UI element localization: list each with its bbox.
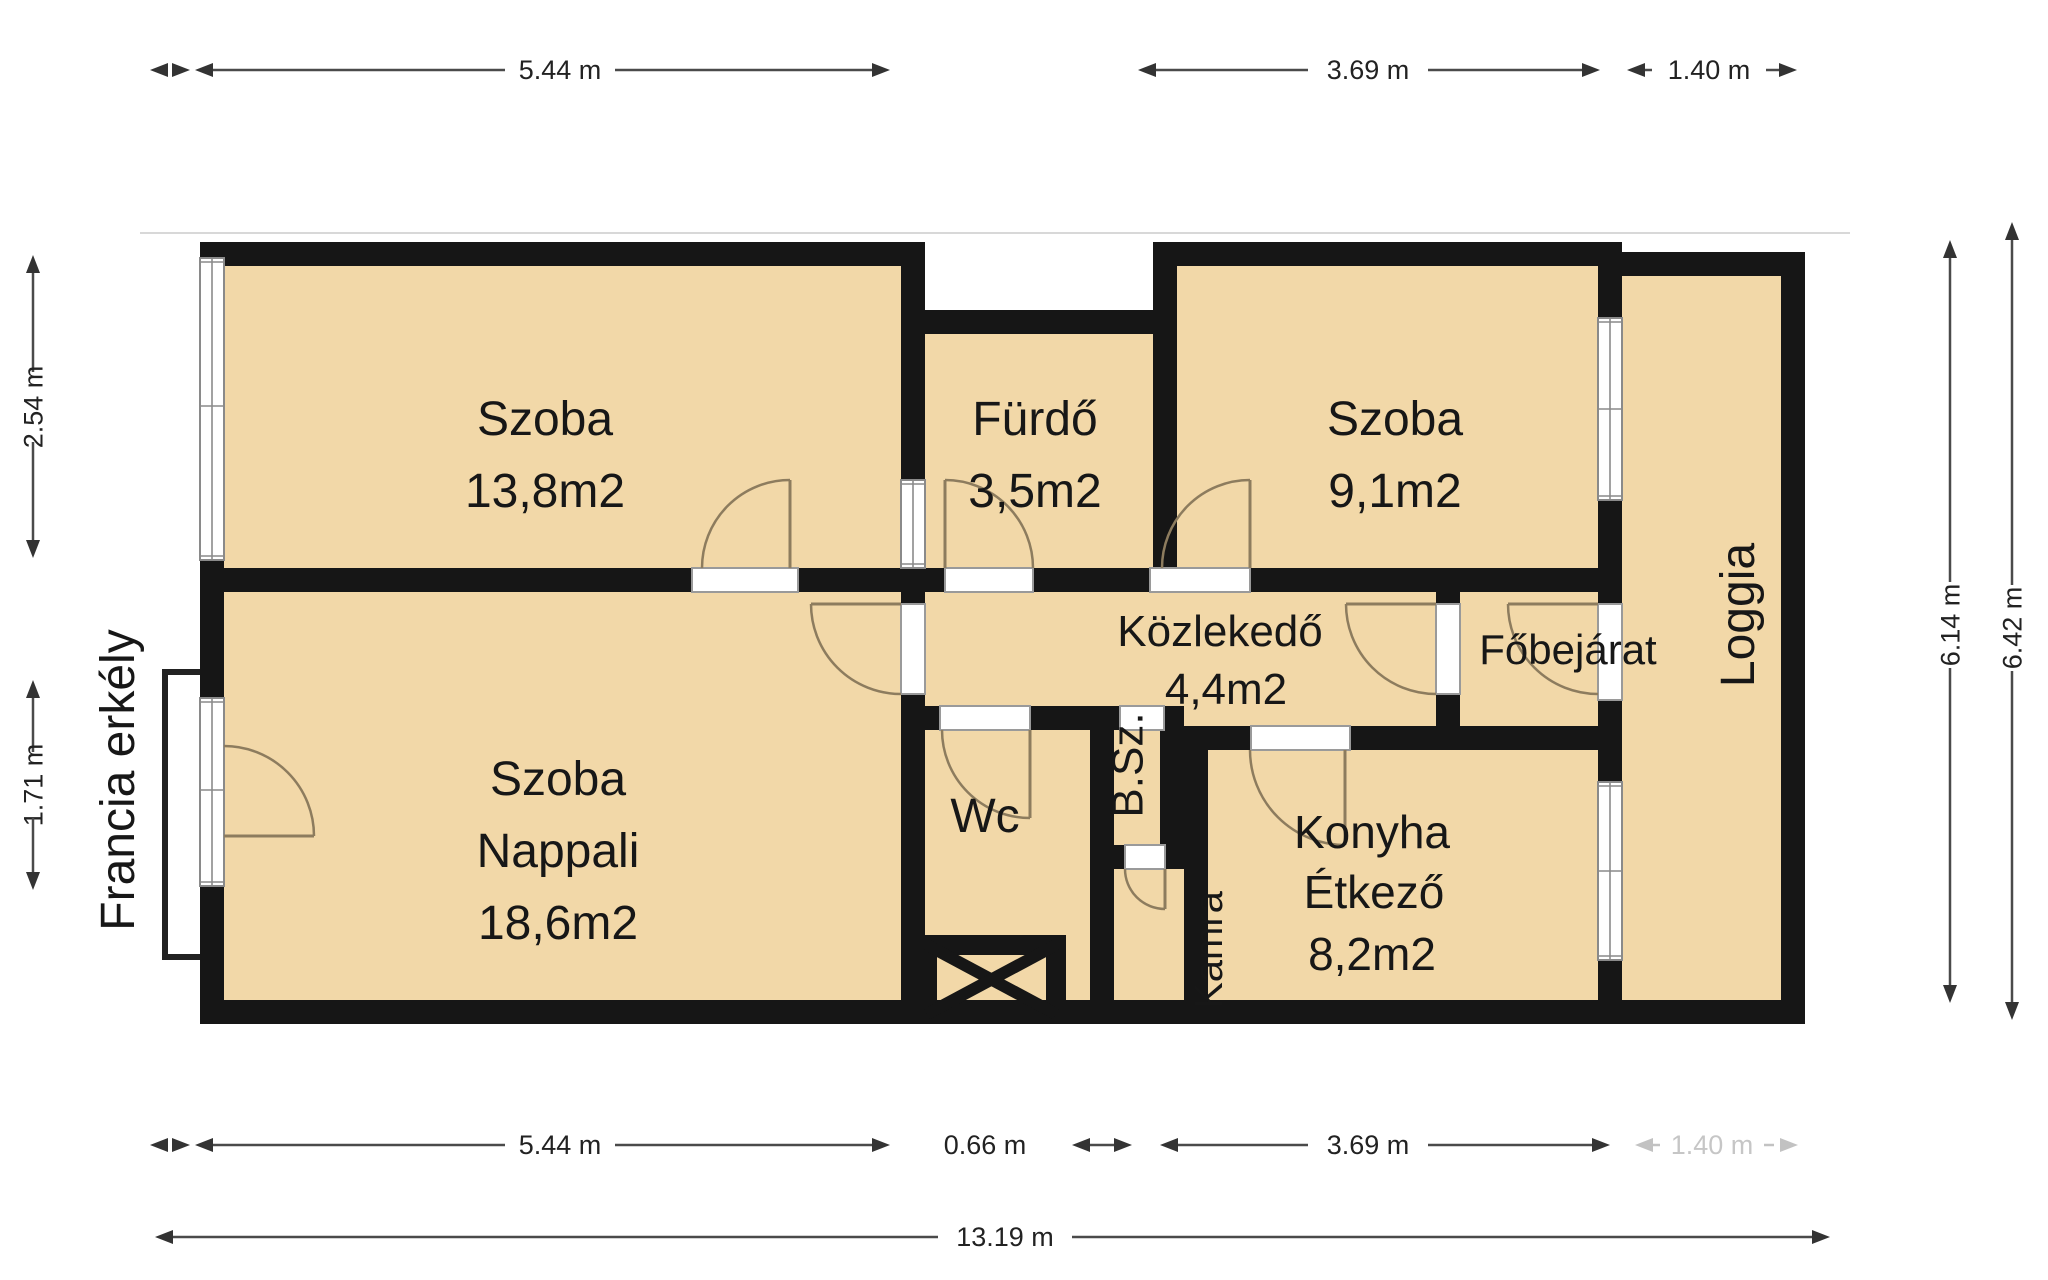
- label-szoba1-name: Szoba: [477, 393, 613, 446]
- label-konyha-name: Konyha: [1294, 806, 1450, 858]
- label-nappali-name: Szoba: [490, 753, 626, 806]
- wall-nappali-right-a: [901, 592, 925, 604]
- dim-top-544: 5.44 m: [519, 55, 602, 85]
- dim-bottom: 5.44 m 0.66 m 3.69 m 1.40 m: [150, 1130, 1798, 1160]
- doorframe-szoba1: [692, 568, 798, 592]
- dim-total: 13.19 m: [155, 1222, 1830, 1252]
- window-szoba2-loggia: [1598, 318, 1622, 500]
- label-wc: Wc: [950, 790, 1019, 843]
- label-szoba2-name: Szoba: [1327, 393, 1463, 446]
- label-kozlekedo-name: Közlekedő: [1117, 607, 1322, 656]
- window-konyha-loggia: [1598, 782, 1622, 960]
- wall-entry-sep-a: [1436, 592, 1460, 604]
- dim-bottom-544: 5.44 m: [519, 1130, 602, 1160]
- floor-plan-page: Szoba 13,8m2 Fürdő 3,5m2 Szoba 9,1m2 Köz…: [0, 0, 2048, 1280]
- wall-konyha-top-a: [1184, 726, 1251, 750]
- wall-right-seg1: [1598, 242, 1622, 318]
- doorframe-wc: [940, 706, 1030, 730]
- wall-entry-sep-b: [1436, 694, 1460, 726]
- wall-divider-seg2: [798, 568, 945, 592]
- wall-left-seg1: [200, 242, 224, 258]
- dim-top-369: 3.69 m: [1327, 55, 1410, 85]
- wall-loggia-top: [1622, 252, 1805, 276]
- label-nappali-area: 18,6m2: [478, 897, 638, 950]
- label-kamra: Kamra: [1187, 890, 1231, 1009]
- wall-divider-seg3: [1033, 568, 1150, 592]
- wall-furdo-top: [901, 310, 1177, 334]
- wall-top-left-block: [200, 242, 925, 266]
- dim-bottom-369: 3.69 m: [1327, 1130, 1410, 1160]
- wall-konyha-top-b: [1350, 726, 1622, 750]
- dim-top: 5.44 m 3.69 m 1.40 m: [150, 55, 1797, 85]
- dim-left: 2.54 m 1.71 m: [18, 255, 48, 890]
- label-furdo-area: 3,5m2: [968, 465, 1101, 518]
- dim-right: 6.14 m 6.42 m: [1935, 222, 2027, 1020]
- wall-top-right-block: [1153, 242, 1622, 266]
- dim-top-140: 1.40 m: [1668, 55, 1751, 85]
- doorframe-kamra: [1125, 845, 1165, 869]
- label-szoba1-area: 13,8m2: [465, 465, 625, 518]
- dim-total-1319: 13.19 m: [956, 1222, 1054, 1252]
- french-balcony-door: [200, 698, 224, 886]
- label-francia-erkely: Francia erkély: [92, 629, 145, 930]
- facade-notch: [901, 242, 1177, 310]
- wall-wc-top-a: [901, 706, 940, 730]
- label-kozlekedo-area: 4,4m2: [1165, 665, 1287, 714]
- dim-bottom-066: 0.66 m: [944, 1130, 1027, 1160]
- doorframe-entry-inner: [1436, 604, 1460, 694]
- wall-szoba1-right: [901, 266, 925, 480]
- svg-text:1.40 m: 1.40 m: [1671, 1130, 1754, 1160]
- wall-divider-seg1: [200, 568, 692, 592]
- wall-bsz-right: [1160, 730, 1184, 845]
- doorframe-nappali: [901, 604, 925, 694]
- floor-plan: Szoba 13,8m2 Fürdő 3,5m2 Szoba 9,1m2 Köz…: [0, 0, 2048, 1280]
- label-szoba2-area: 9,1m2: [1328, 465, 1461, 518]
- dim-right-614: 6.14 m: [1935, 584, 1965, 667]
- wall-kamra-top-a: [1114, 845, 1125, 869]
- label-loggia: Loggia: [1712, 543, 1765, 687]
- dim-left-171: 1.71 m: [18, 744, 48, 827]
- doorframe-furdo: [945, 568, 1033, 592]
- window-szoba1-left: [200, 258, 224, 560]
- label-fobejarat: Főbejárat: [1479, 626, 1657, 673]
- label-nappali-name2: Nappali: [477, 825, 640, 878]
- label-konyha-area: 8,2m2: [1308, 928, 1436, 980]
- doorframe-szoba2: [1150, 568, 1250, 592]
- wall-loggia-bottom: [1622, 1000, 1805, 1024]
- french-balcony-platform: [165, 672, 203, 957]
- dim-left-254: 2.54 m: [18, 366, 48, 449]
- label-furdo-name: Fürdő: [972, 393, 1097, 446]
- label-konyha-name2: Étkező: [1304, 866, 1445, 918]
- dim-bottom-140-faded: 1.40 m: [1635, 1130, 1798, 1160]
- wall-furdo-right: [1153, 334, 1177, 568]
- wall-bottom: [200, 1000, 1622, 1024]
- doorframe-konyha: [1251, 726, 1350, 750]
- dim-right-642: 6.42 m: [1997, 587, 2027, 670]
- label-bsz: B.Sz.: [1103, 712, 1152, 817]
- wall-loggia-right: [1781, 252, 1805, 1024]
- window-szoba1-furdo: [901, 480, 925, 568]
- wall-divider-seg4: [1250, 568, 1622, 592]
- wall-right-seg4: [1598, 960, 1622, 1024]
